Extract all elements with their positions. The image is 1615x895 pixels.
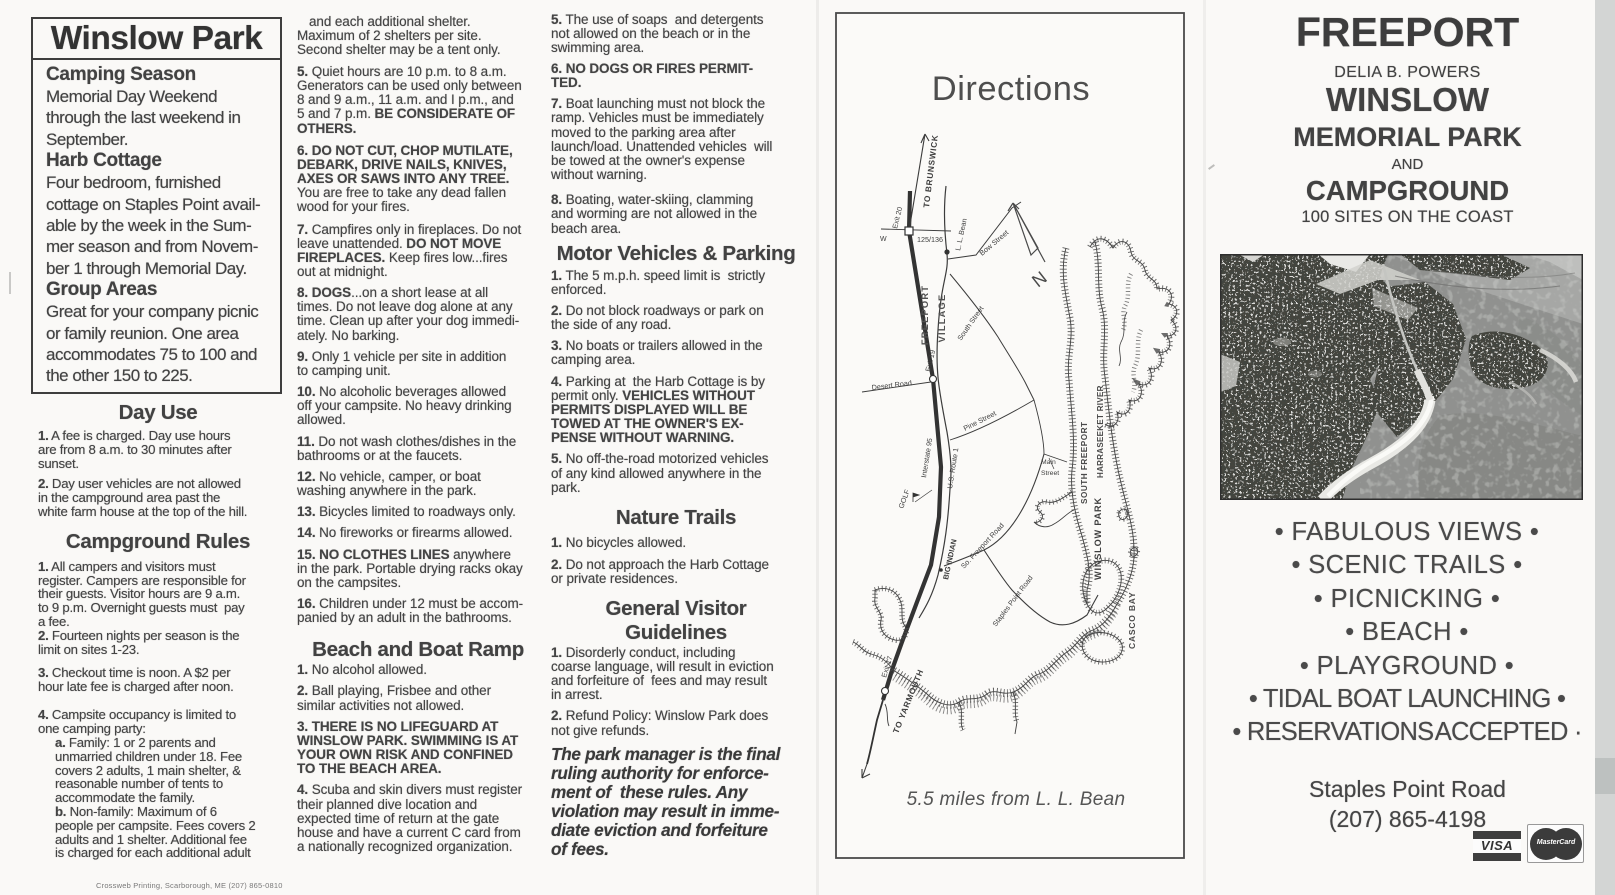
svg-text:Directions: Directions	[932, 70, 1090, 108]
svg-text:CASCO BAY: CASCO BAY	[1127, 592, 1137, 649]
svg-text:VILLAGE: VILLAGE	[937, 294, 947, 343]
svg-text:HARRASEEKET RIVER: HARRASEEKET RIVER	[1096, 385, 1105, 478]
svg-text:FREEPORT: FREEPORT	[920, 285, 930, 345]
svg-text:Main: Main	[1041, 459, 1056, 466]
svg-text:Street: Street	[1041, 470, 1059, 477]
svg-text:125/136: 125/136	[917, 235, 943, 244]
svg-text:W: W	[880, 236, 887, 243]
svg-text:5.5 miles from L. L. Bean: 5.5 miles from L. L. Bean	[907, 789, 1126, 810]
svg-text:WINSLOW PARK: WINSLOW PARK	[1093, 497, 1103, 580]
svg-text:SOUTH FREEPORT: SOUTH FREEPORT	[1080, 421, 1089, 504]
